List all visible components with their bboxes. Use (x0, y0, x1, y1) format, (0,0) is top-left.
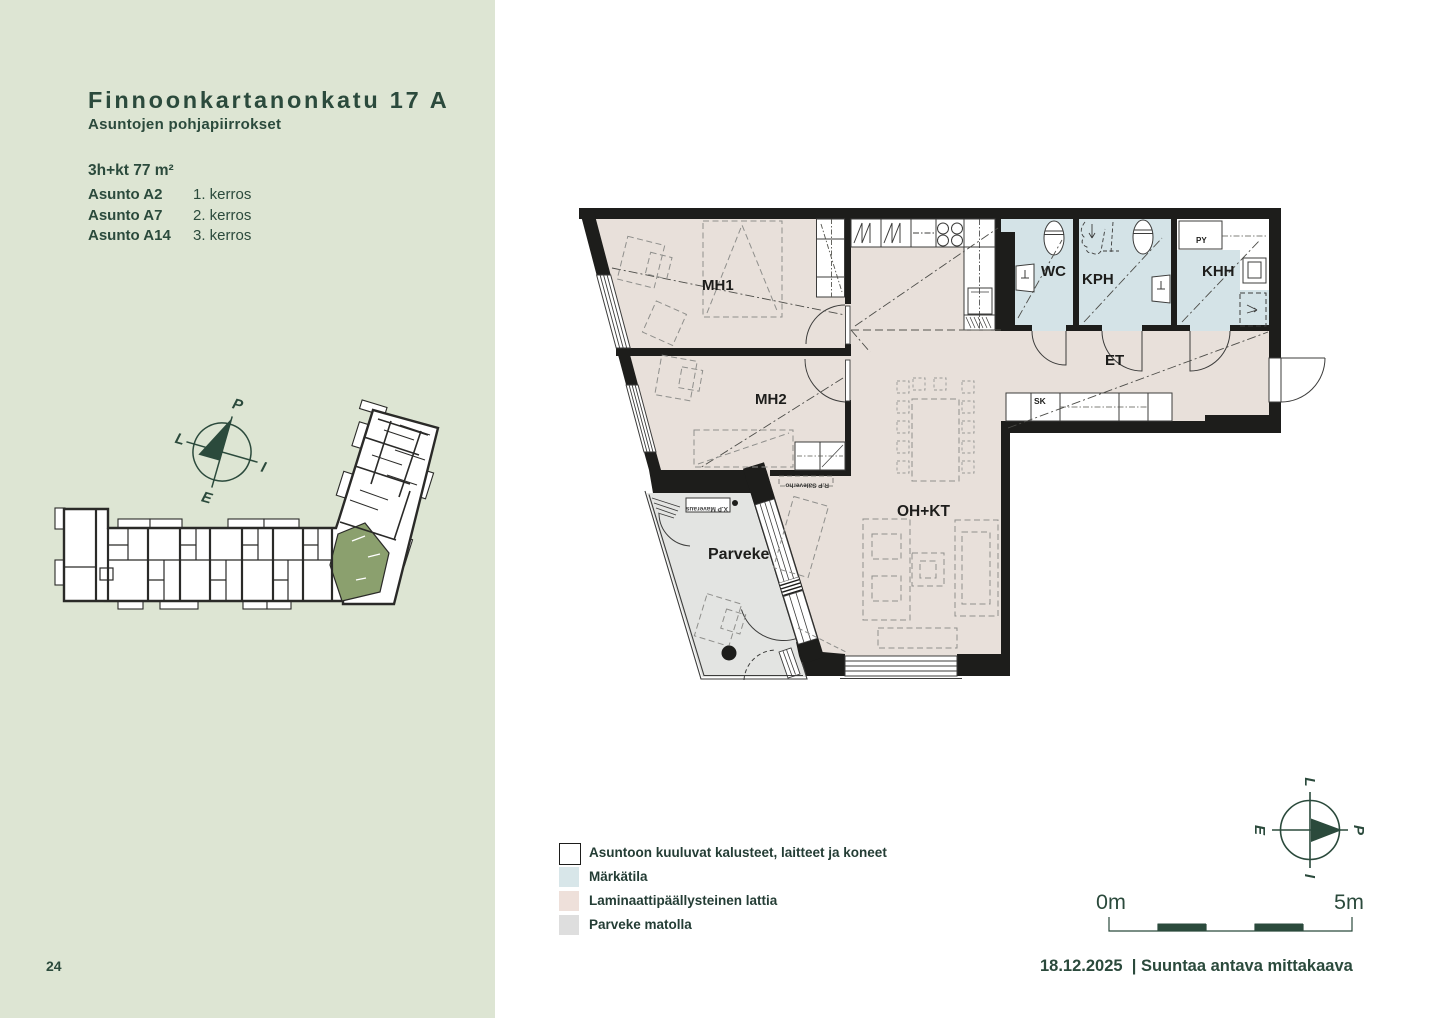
svg-text:OH+KT: OH+KT (897, 503, 950, 520)
svg-text:Parveke: Parveke (708, 546, 769, 563)
svg-text:E: E (1251, 825, 1268, 836)
svg-text:SK: SK (1034, 396, 1047, 406)
svg-text:PY: PY (1196, 236, 1207, 245)
svg-text:L: L (173, 430, 187, 449)
svg-text:KPH: KPH (1082, 271, 1114, 288)
svg-text:WC: WC (1041, 263, 1066, 280)
svg-text:I: I (259, 459, 268, 477)
svg-text:E: E (200, 489, 215, 508)
svg-text:R.P Säleverho: R.P Säleverho (785, 482, 829, 489)
svg-text:MH1: MH1 (702, 277, 734, 294)
svg-text:I: I (1301, 874, 1318, 879)
svg-text:P: P (230, 395, 245, 414)
svg-text:MH2: MH2 (755, 391, 787, 408)
svg-text:X.P Maveraus: X.P Maveraus (685, 505, 728, 512)
svg-text:KHH: KHH (1202, 263, 1235, 280)
svg-text:ET: ET (1105, 352, 1124, 369)
svg-text:L: L (1301, 777, 1318, 786)
svg-text:P: P (1350, 825, 1367, 836)
